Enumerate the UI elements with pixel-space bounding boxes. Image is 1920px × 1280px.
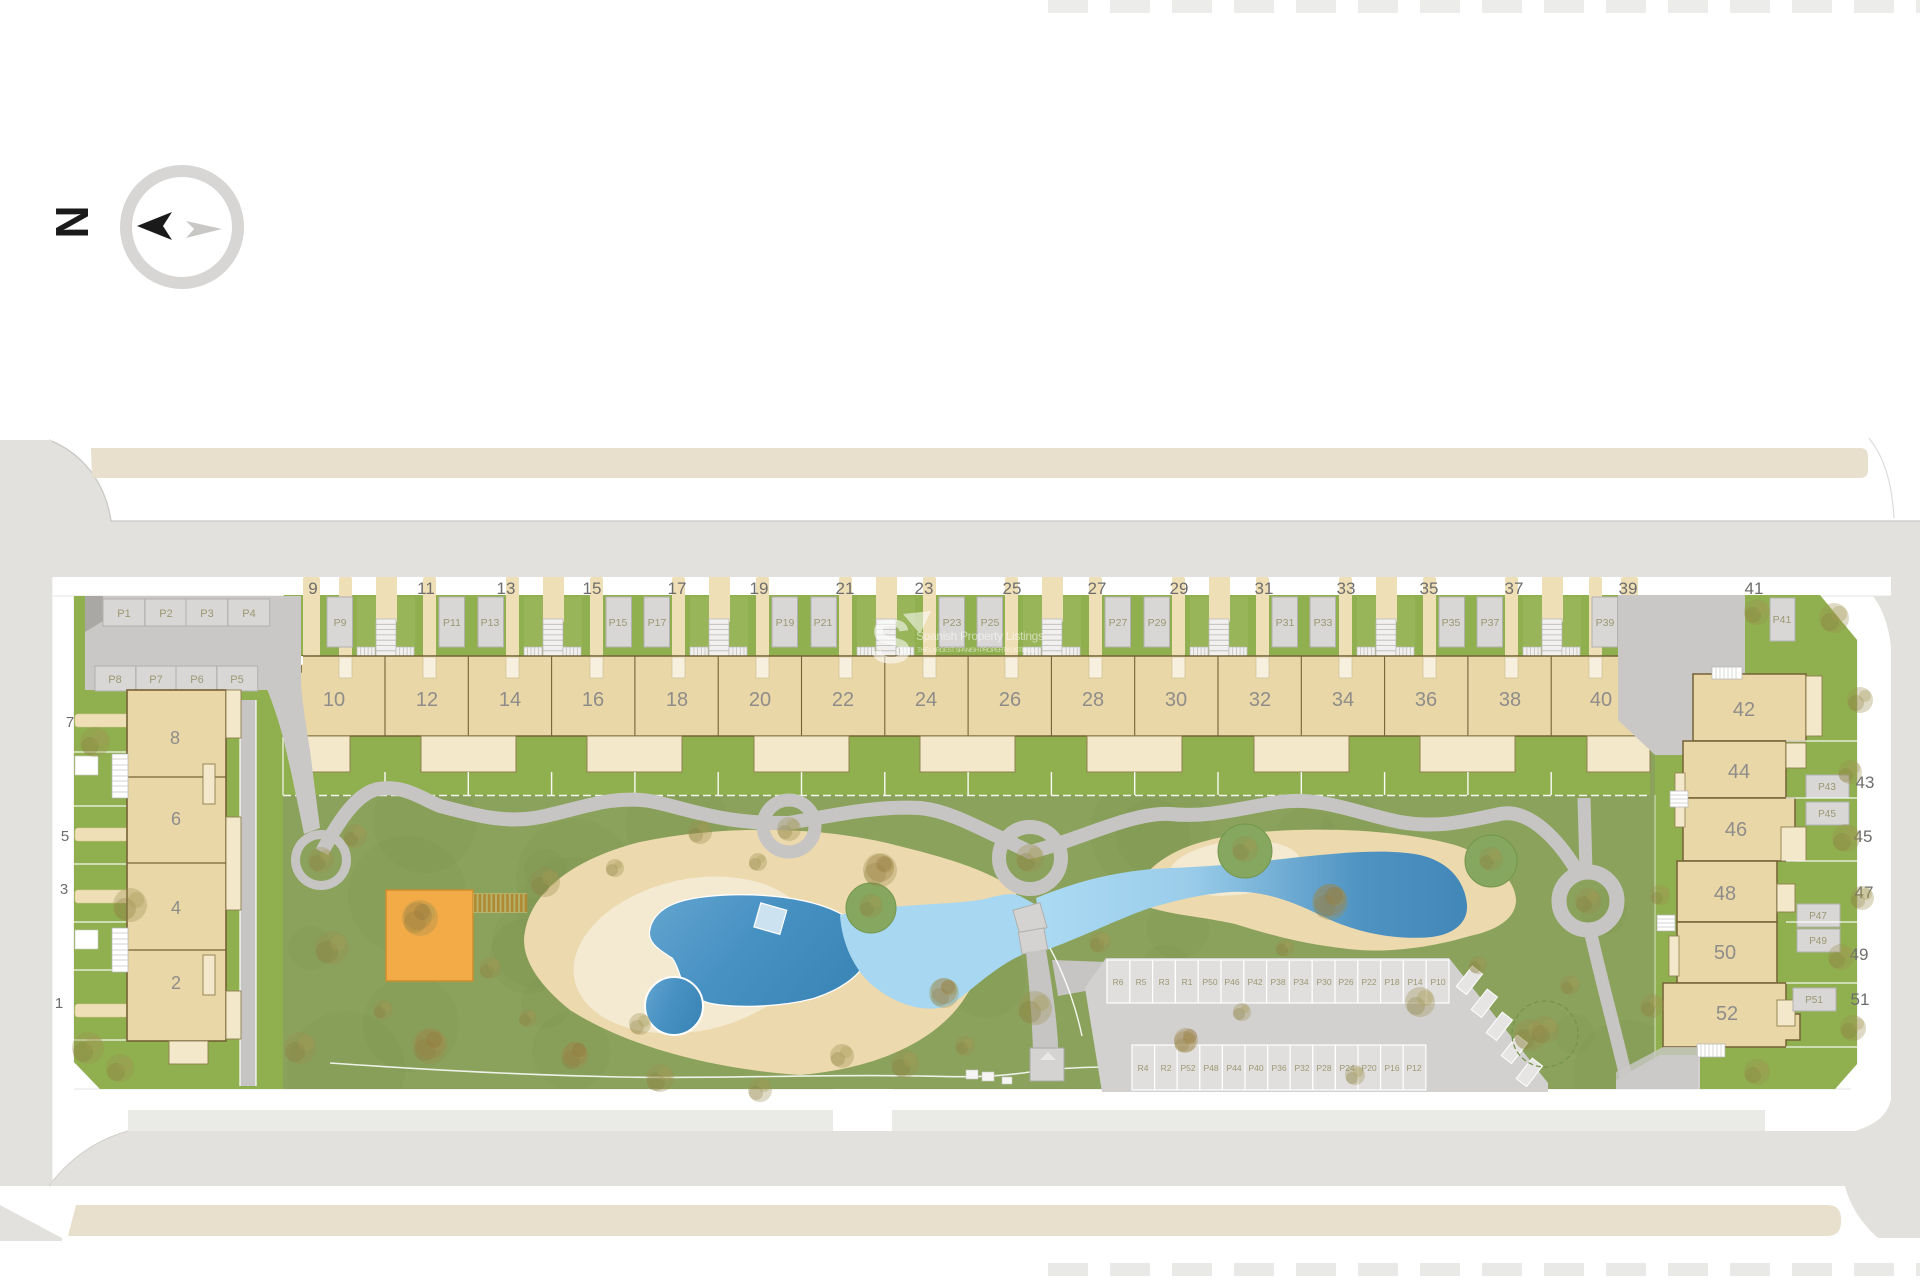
svg-text:P10: P10 [1430,977,1445,987]
svg-text:P40: P40 [1248,1063,1263,1073]
svg-text:N: N [46,205,98,238]
svg-text:19: 19 [750,579,769,598]
svg-text:P7: P7 [149,674,162,686]
svg-text:28: 28 [1082,689,1104,711]
svg-text:P45: P45 [1818,809,1836,820]
svg-text:P13: P13 [481,617,500,629]
svg-text:P2: P2 [159,608,172,620]
svg-text:P5: P5 [230,674,243,686]
svg-text:52: 52 [1716,1003,1738,1025]
svg-text:P35: P35 [1442,617,1461,629]
svg-text:P17: P17 [648,617,667,629]
svg-text:2: 2 [171,973,181,993]
svg-text:30: 30 [1165,689,1187,711]
svg-text:P50: P50 [1202,977,1217,987]
svg-text:P4: P4 [242,608,255,620]
svg-text:P41: P41 [1773,614,1792,626]
svg-text:33: 33 [1337,579,1356,598]
svg-text:16: 16 [582,689,604,711]
svg-text:P12: P12 [1406,1063,1421,1073]
svg-text:P8: P8 [108,674,121,686]
svg-text:P23: P23 [943,617,962,629]
svg-text:P18: P18 [1384,977,1399,987]
svg-text:P29: P29 [1148,617,1167,629]
svg-text:21: 21 [836,579,855,598]
svg-text:46: 46 [1725,819,1747,841]
svg-text:48: 48 [1714,883,1736,905]
svg-text:27: 27 [1088,579,1107,598]
svg-text:25: 25 [1003,579,1022,598]
svg-text:P34: P34 [1293,977,1308,987]
svg-text:10: 10 [323,689,345,711]
svg-text:P15: P15 [609,617,628,629]
svg-text:R1: R1 [1182,977,1193,987]
svg-text:35: 35 [1420,579,1439,598]
svg-text:P6: P6 [190,674,203,686]
svg-text:1: 1 [55,995,63,1012]
svg-text:17: 17 [668,579,687,598]
svg-text:P31: P31 [1276,617,1295,629]
svg-text:34: 34 [1332,689,1354,711]
svg-text:P19: P19 [776,617,795,629]
svg-text:23: 23 [915,579,934,598]
svg-text:R2: R2 [1161,1063,1172,1073]
svg-text:32: 32 [1249,689,1271,711]
svg-text:P51: P51 [1805,995,1823,1006]
svg-text:20: 20 [749,689,771,711]
svg-text:26: 26 [999,689,1021,711]
svg-text:P39: P39 [1596,617,1615,629]
svg-text:P32: P32 [1294,1063,1309,1073]
svg-text:THE LARGEST SPANISH PROPERTY L: THE LARGEST SPANISH PROPERTY LISTINGS [917,647,1036,654]
svg-text:P9: P9 [334,617,347,629]
svg-text:P52: P52 [1180,1063,1195,1073]
svg-text:R4: R4 [1138,1063,1149,1073]
svg-text:14: 14 [499,689,521,711]
svg-text:13: 13 [497,579,516,598]
svg-text:38: 38 [1499,689,1521,711]
svg-text:P16: P16 [1384,1063,1399,1073]
svg-text:7: 7 [66,714,74,731]
svg-text:36: 36 [1415,689,1437,711]
svg-text:P44: P44 [1226,1063,1241,1073]
svg-text:18: 18 [666,689,688,711]
svg-text:22: 22 [832,689,854,711]
svg-text:5: 5 [61,828,69,845]
svg-text:41: 41 [1745,579,1764,598]
svg-text:P1: P1 [117,608,130,620]
svg-text:P37: P37 [1481,617,1500,629]
svg-text:24: 24 [915,689,937,711]
svg-text:P48: P48 [1203,1063,1218,1073]
svg-text:12: 12 [416,689,438,711]
svg-text:31: 31 [1255,579,1274,598]
svg-text:R6: R6 [1113,977,1124,987]
svg-text:P26: P26 [1338,977,1353,987]
svg-text:P3: P3 [200,608,213,620]
svg-text:4: 4 [171,898,181,918]
svg-text:P25: P25 [981,617,1000,629]
svg-text:50: 50 [1714,942,1736,964]
svg-text:P38: P38 [1270,977,1285,987]
svg-text:P46: P46 [1224,977,1239,987]
svg-text:P49: P49 [1809,936,1827,947]
svg-text:P11: P11 [443,617,461,629]
svg-text:Spanish Property Listings: Spanish Property Listings [916,629,1044,643]
svg-text:6: 6 [171,809,181,829]
svg-text:P43: P43 [1818,782,1836,793]
svg-text:51: 51 [1851,990,1870,1009]
svg-text:P30: P30 [1316,977,1331,987]
svg-text:3: 3 [60,881,68,898]
svg-text:P27: P27 [1109,617,1128,629]
svg-text:8: 8 [170,728,180,748]
svg-text:P21: P21 [814,617,833,629]
svg-text:P28: P28 [1316,1063,1331,1073]
svg-text:15: 15 [583,579,602,598]
svg-text:44: 44 [1728,761,1750,783]
svg-text:R3: R3 [1159,977,1170,987]
svg-text:P22: P22 [1361,977,1376,987]
svg-text:42: 42 [1733,699,1755,721]
svg-text:29: 29 [1170,579,1189,598]
svg-text:40: 40 [1590,689,1612,711]
svg-text:9: 9 [308,579,317,598]
svg-text:P42: P42 [1247,977,1262,987]
svg-text:37: 37 [1505,579,1524,598]
svg-text:R5: R5 [1136,977,1147,987]
svg-text:S: S [870,608,911,677]
svg-text:P14: P14 [1407,977,1422,987]
svg-text:P33: P33 [1314,617,1333,629]
svg-text:11: 11 [417,579,435,598]
svg-text:P47: P47 [1809,911,1827,922]
svg-text:P36: P36 [1271,1063,1286,1073]
